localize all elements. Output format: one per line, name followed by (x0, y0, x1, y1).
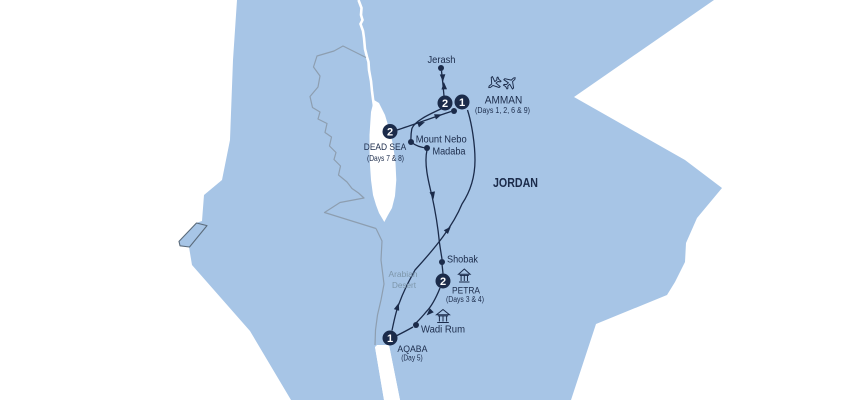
svg-text:AMMAN: AMMAN (485, 95, 523, 107)
svg-text:Arabian: Arabian (389, 269, 418, 279)
svg-text:Wadi Rum: Wadi Rum (421, 324, 465, 335)
svg-text:(Days 7 & 8): (Days 7 & 8) (367, 154, 404, 163)
svg-text:(Days 3 & 4): (Days 3 & 4) (446, 295, 484, 304)
svg-text:2: 2 (440, 276, 446, 288)
svg-text:2: 2 (387, 126, 393, 138)
svg-text:Jerash: Jerash (428, 54, 456, 66)
svg-text:Madaba: Madaba (433, 147, 467, 158)
svg-text:(Day 5): (Day 5) (401, 354, 423, 363)
svg-text:Shobak: Shobak (447, 255, 478, 266)
svg-text:JORDAN: JORDAN (493, 176, 538, 190)
svg-text:(Days 1, 2, 6 & 9): (Days 1, 2, 6 & 9) (475, 106, 530, 115)
svg-text:2: 2 (442, 98, 448, 110)
svg-text:1: 1 (459, 97, 465, 109)
svg-text:Desert: Desert (392, 280, 417, 290)
svg-text:DEAD SEA: DEAD SEA (364, 141, 407, 152)
svg-text:Mount Nebo: Mount Nebo (416, 135, 468, 146)
svg-text:1: 1 (387, 333, 393, 345)
